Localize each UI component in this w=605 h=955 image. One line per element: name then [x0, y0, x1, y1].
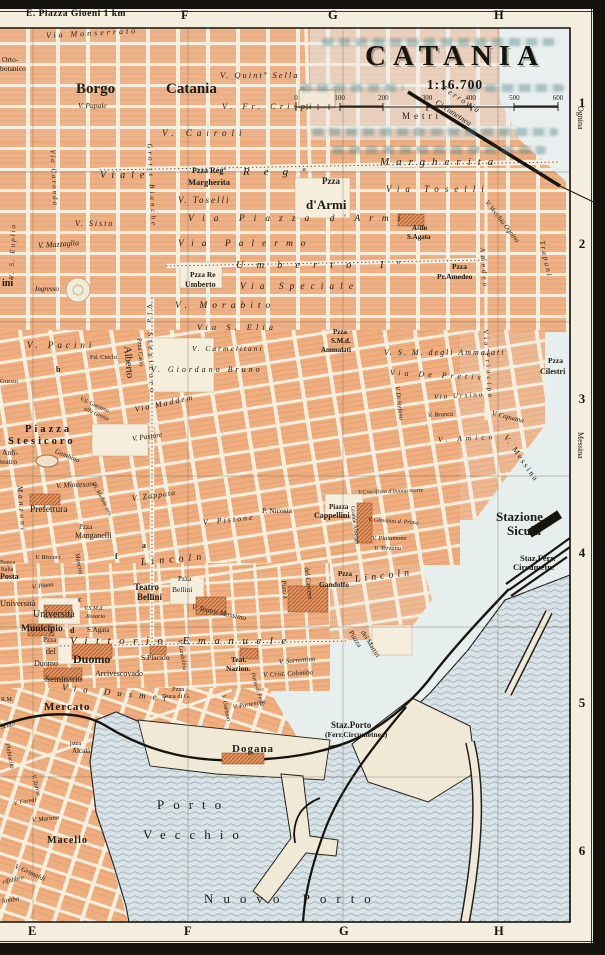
- map-label: V. Vecchia Ognina: [483, 199, 520, 244]
- map-label: V. Mazzaglia: [38, 239, 80, 250]
- map-label: botanico: [0, 65, 26, 73]
- map-label: Pzza: [79, 524, 92, 531]
- top-margin-note: E. Piazza Gioeni 1 km: [26, 9, 126, 19]
- map-label: ini: [2, 279, 13, 289]
- margin-label: G: [339, 924, 349, 939]
- map-label: Duomo: [73, 653, 110, 665]
- map-label: Via Speciale: [240, 283, 359, 293]
- map-label: V. Giovanni d. Prima: [368, 517, 419, 527]
- map-label: Lincoln: [141, 552, 207, 568]
- map-label: Sicula: [507, 524, 541, 537]
- frame-bottom-inner: [0, 941, 605, 942]
- map-label: S.Agata: [87, 627, 109, 634]
- margin-label: F: [184, 924, 192, 939]
- title-block: CATANIA 1:16.700: [340, 40, 570, 93]
- map-label: V. Terzano: [374, 546, 401, 553]
- map-label: f: [115, 553, 118, 561]
- map-label: teatro: [0, 458, 17, 466]
- map-label: V. Di Stefano: [393, 386, 404, 421]
- map-label: Stazione: [496, 510, 543, 523]
- map-label: R.M.: [1, 697, 13, 703]
- margin-label: F: [181, 8, 189, 23]
- map-label: Ammalati: [321, 347, 351, 354]
- map-label: Via Toselli: [386, 185, 490, 194]
- map-label: Via Palermo: [178, 240, 314, 250]
- map-label: Alberto: [121, 346, 134, 379]
- map-label: d: [70, 627, 74, 635]
- map-label: Stesicoro: [8, 437, 76, 448]
- map-label: Bellini: [137, 593, 162, 602]
- scale-tick: 600: [553, 94, 564, 102]
- map-label: Mancini: [73, 553, 83, 575]
- map-label: Plebiscito: [3, 743, 15, 770]
- map-label: Università: [0, 599, 35, 608]
- map-label: Pzza: [178, 576, 191, 583]
- map-label: Via De Pretis: [390, 369, 485, 382]
- map-label: Lincoln: [354, 568, 413, 585]
- frame-right-inner: [591, 0, 592, 955]
- frame-bottom: [0, 943, 605, 955]
- map-label: Gandolfo: [319, 581, 349, 589]
- map-label: Fd. Ciechi: [90, 355, 117, 362]
- margin-label: Messina: [576, 432, 585, 459]
- scale-tick: 100: [334, 94, 345, 102]
- map-label: Vecchio: [143, 828, 248, 841]
- map-scale-ratio: 1:16.700: [340, 77, 570, 93]
- frame-right: [593, 0, 605, 955]
- map-label: Amedeo: [479, 247, 489, 289]
- map-label: b: [56, 366, 60, 374]
- map-label: Dogana: [232, 744, 274, 755]
- map-label: Margherita: [188, 178, 230, 187]
- scale-tick: 200: [378, 94, 389, 102]
- map-label: V. S. Euplio: [9, 223, 18, 280]
- map-label: Circumetn.: [513, 563, 554, 572]
- map-label: V. Carmelitani: [192, 345, 264, 353]
- map-label: Via Ursino: [434, 391, 485, 401]
- margin-label: 2: [572, 236, 592, 252]
- map-label: P. Nicosia: [262, 507, 292, 515]
- map-label: Manzoni: [16, 485, 27, 533]
- map-label: Piazza: [329, 504, 348, 511]
- map-label: V. Fr. Crispi: [222, 102, 315, 111]
- map-label: Umberto Iº: [236, 261, 413, 272]
- map-label: Piazza: [25, 425, 72, 436]
- map-label: Orto-: [2, 56, 18, 64]
- map-label: Prefettura: [30, 506, 67, 516]
- map-label: V. Pistone: [203, 514, 255, 527]
- map-label: V. Sisto: [75, 220, 114, 228]
- map-label: Catania: [166, 82, 217, 97]
- map-label: V. Platamone: [372, 536, 407, 543]
- map-label: Pzza: [452, 263, 467, 271]
- map-label: Nazion.: [226, 665, 250, 673]
- margin-label: H: [494, 924, 504, 939]
- map-label: V. Capuana: [491, 410, 524, 425]
- scale-tick: 400: [465, 94, 476, 102]
- map-label: (Ferr.Circumetnea): [325, 731, 387, 739]
- map-label: V. Piana: [32, 582, 55, 591]
- map-label: V. Branca: [428, 412, 454, 420]
- map-label: Nuovo Porto: [204, 892, 381, 905]
- map-label: del Carcere: [303, 567, 314, 600]
- map-label: Pzza Re: [190, 271, 216, 279]
- map-label: Pr.Amedeo: [437, 273, 472, 281]
- margin-label: H: [494, 8, 504, 23]
- map-label: Pzza Carlo: [135, 338, 144, 367]
- map-label: Cappellini: [314, 512, 350, 520]
- map-label: Pzza Regª: [192, 167, 226, 175]
- map-label: Asilo: [412, 225, 427, 232]
- map-label: Università: [33, 610, 75, 620]
- map-label: V. Zurria: [30, 774, 41, 796]
- map-label: Via Monserrato: [46, 27, 139, 40]
- map-label: Gussio: [0, 379, 18, 386]
- map-label: Via Maddem: [134, 394, 195, 414]
- scale-tick: 500: [509, 94, 520, 102]
- map-label: V. Papale: [78, 102, 107, 110]
- map-label: Macello: [47, 836, 88, 846]
- map-label: Banca: [0, 560, 15, 566]
- margin-label: G: [328, 8, 338, 23]
- map-label: Arcivescovado: [95, 670, 143, 678]
- map-label: Ingresso: [35, 286, 59, 293]
- map-label: Viale: [100, 171, 150, 181]
- map-label: Teatro: [134, 583, 159, 592]
- map-label: Pzza: [333, 329, 347, 336]
- map-label: S.Placido: [141, 654, 170, 662]
- map-label: Pzza: [322, 177, 340, 186]
- map-label: S.Agata: [407, 234, 431, 241]
- map-label: V. Pacini: [27, 341, 95, 350]
- map-label: c: [78, 596, 82, 604]
- margin-label: 6: [572, 843, 592, 859]
- map-label: Bellini: [172, 586, 192, 594]
- map-page: Via MonserratoBorgoCataniaV. PapaleV. Qu…: [0, 0, 605, 955]
- map-label: Duomo: [34, 660, 58, 668]
- map-label: Scuto: [0, 721, 16, 731]
- map-label: Grotte Bianche: [146, 143, 157, 228]
- map-label: Borgo: [76, 82, 115, 97]
- map-label: Pzza: [43, 637, 56, 644]
- map-label: rifabbro: [2, 875, 24, 886]
- scale-tick: 0: [294, 94, 298, 102]
- map-labels-layer: Via MonserratoBorgoCataniaV. PapaleV. Qu…: [0, 0, 605, 955]
- frame-top: [0, 0, 605, 9]
- map-label: V. Teatro Massimo: [191, 603, 247, 622]
- map-label: Anfi-: [2, 449, 18, 457]
- map-label: Piazza: [280, 580, 289, 599]
- margin-label: Ognina: [576, 106, 585, 130]
- map-label: Margherita: [380, 157, 500, 168]
- map-label: Regª: [243, 167, 319, 178]
- map-label: V. Marano: [32, 815, 60, 824]
- map-label: Cilestri: [540, 368, 565, 376]
- scale-tick: 300: [422, 94, 433, 102]
- scale-unit-label: Metri: [402, 111, 442, 121]
- margin-label: 4: [572, 545, 592, 561]
- map-label: V. Sorrentino: [279, 656, 316, 666]
- map-label: a: [142, 542, 146, 550]
- map-label: V. Gaetano: [220, 694, 231, 721]
- map-label: Staz.Porto: [331, 721, 371, 730]
- map-label: V. Amico: [438, 433, 497, 444]
- map-label: Pzza: [338, 571, 352, 578]
- map-label: d'Armi: [306, 198, 346, 211]
- map-label: V. Crist. Colombo: [263, 669, 313, 679]
- map-label: Manganelli: [75, 532, 111, 540]
- map-label: V. Fornai: [13, 797, 36, 807]
- map-label: V. Zappata: [131, 489, 176, 503]
- map-label: Grande Albergo: [349, 506, 360, 545]
- map-label: V. Toselli: [178, 196, 231, 205]
- map-label: lombo: [2, 896, 20, 905]
- map-label: V.S. Michele min.: [90, 481, 113, 517]
- map-label: V.S.M.d.: [84, 606, 104, 612]
- map-label: del: [46, 648, 56, 656]
- map-label: V. Quintº Sella: [220, 71, 299, 80]
- map-label: Trapani: [538, 240, 553, 278]
- map-label: Duca di G.: [162, 694, 190, 701]
- map-label: Alcalà: [72, 748, 90, 755]
- map-label: Via S. Elia: [197, 323, 277, 332]
- margin-label: E: [28, 924, 36, 939]
- map-label: Gambino: [54, 448, 81, 464]
- margin-label: 5: [572, 695, 592, 711]
- map-label: Rosario: [86, 614, 105, 620]
- map-label: Teat.: [231, 656, 247, 664]
- map-label: V. Morabito: [175, 302, 275, 312]
- map-label: S.M.d.: [331, 338, 351, 345]
- map-label: Mercato: [44, 702, 91, 713]
- map-label: Via Piazza d'Armi: [188, 215, 409, 225]
- margin-label: 3: [572, 391, 592, 407]
- map-label: V.Crocifisso d.buona morte: [358, 488, 424, 496]
- map-label: V. Giordano Bruno: [151, 366, 263, 374]
- map-label: V. Biscari: [35, 555, 60, 562]
- map-label: Via Stesicoro: [145, 304, 156, 396]
- map-label: Porto: [157, 798, 230, 811]
- map-label: V. Cairoli: [162, 129, 247, 138]
- map-label: Municipio: [21, 625, 63, 635]
- map-label: V. Pastore: [131, 431, 162, 443]
- map-title: CATANIA: [340, 40, 570, 73]
- map-label: Via Caronda: [49, 149, 59, 207]
- map-label: Posta: [0, 573, 19, 581]
- map-label: Umberto: [185, 281, 216, 289]
- map-label: V. Messina: [502, 434, 540, 484]
- map-label: Pzza: [548, 357, 563, 365]
